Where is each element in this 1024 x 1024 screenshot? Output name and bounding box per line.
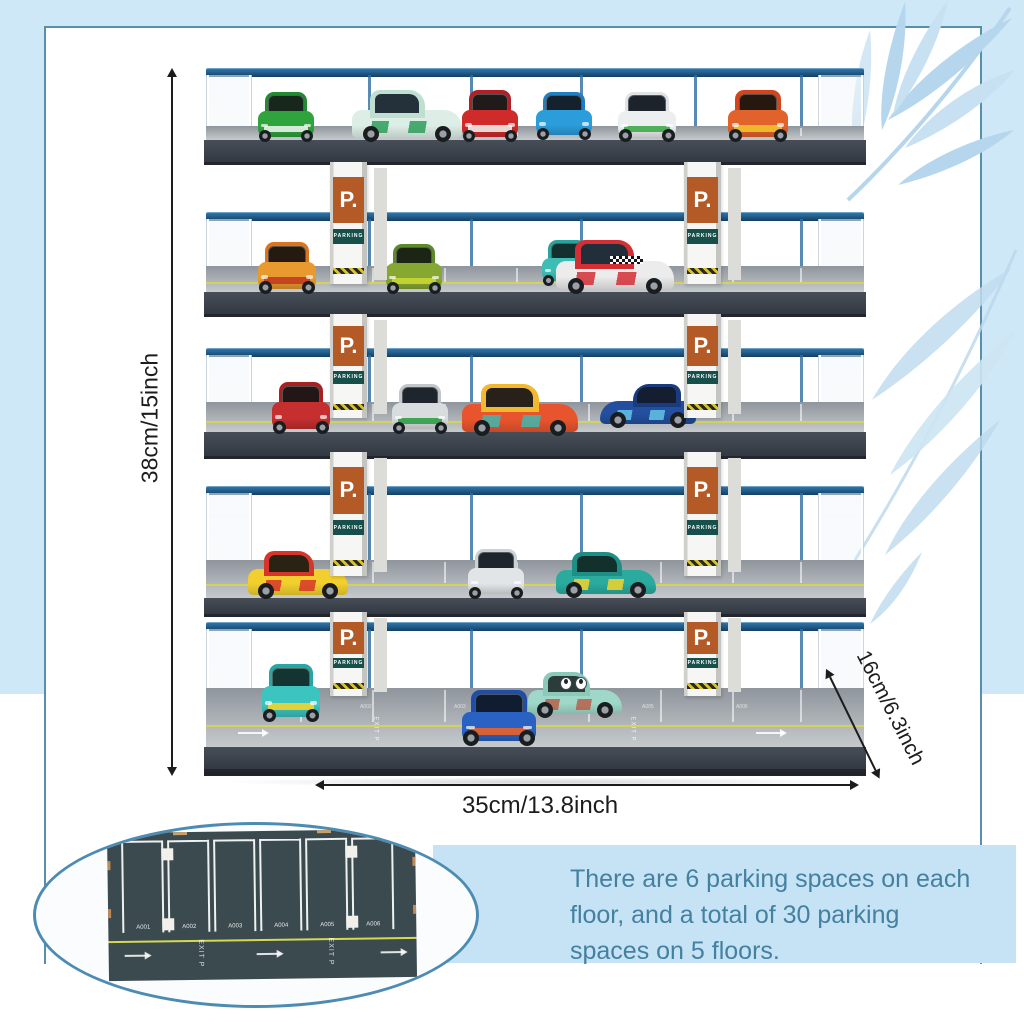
car-accent-stripe (468, 125, 513, 132)
deck-slab-edge (204, 140, 866, 165)
pillar-pad (346, 916, 358, 928)
car-wheel (301, 130, 313, 142)
car-wheel (537, 702, 553, 718)
support-pillar: P.PARKING (330, 314, 367, 418)
support-pillar-back (374, 618, 387, 692)
toy-car (462, 690, 536, 744)
car-headlight (777, 123, 784, 127)
car-window (637, 387, 675, 403)
parking-sign-p: P. (687, 326, 719, 366)
car-wheel (511, 587, 523, 599)
support-pillar-back (728, 168, 741, 280)
parking-space-line (800, 690, 802, 722)
parking-space-line (732, 690, 734, 722)
pillar-pad (345, 846, 357, 858)
railing-post (800, 219, 803, 272)
pillar-pad (162, 918, 174, 930)
toy-car (462, 384, 578, 434)
car-headlight (261, 275, 268, 279)
parking-space-outline: A005 (305, 838, 348, 931)
car-headlight (545, 269, 551, 272)
car-wheel (316, 421, 329, 434)
parking-space-line (800, 404, 802, 421)
deck-base-lip (204, 772, 866, 776)
hazard-stripe (333, 404, 365, 410)
exit-marking: EXIT P (372, 717, 378, 742)
toy-car (600, 384, 696, 426)
car-wheel (619, 129, 632, 142)
car-wheel (646, 278, 662, 294)
acrylic-side-panel-left (206, 219, 252, 271)
car-headlight (666, 124, 673, 127)
parking-space-line (800, 268, 802, 282)
car-headlight (514, 581, 521, 584)
support-pillar-back (728, 618, 741, 692)
lane-line (108, 937, 416, 943)
car-headlight (275, 415, 282, 419)
car-wheel (505, 130, 517, 142)
car-checker-flag (610, 256, 643, 264)
height-dimension-label: 38cm/15inch (137, 353, 164, 483)
parking-space-outline: A001 (121, 840, 164, 933)
car-wheel (363, 126, 379, 142)
car-wheel (273, 421, 286, 434)
description-line: floor, and a total of 30 parking (570, 897, 970, 933)
toy-car (618, 92, 676, 140)
car-wheel (463, 730, 479, 746)
parking-space-number: A001 (124, 924, 162, 931)
description-text: There are 6 parking spaces on each floor… (570, 861, 970, 969)
hazard-stripe (333, 268, 365, 274)
toy-car (272, 382, 330, 432)
car-headlight (320, 415, 327, 419)
exit-marking: EXIT P (327, 937, 334, 965)
toy-car (462, 90, 518, 140)
deck-slab-edge (204, 432, 866, 459)
railing-post (470, 629, 473, 694)
acrylic-side-panel-left (206, 493, 252, 565)
toy-car (258, 92, 314, 140)
car-wheel (302, 281, 315, 294)
parking-sign-p: P. (687, 467, 719, 514)
hazard-stripe (333, 683, 365, 689)
car-headlight (539, 122, 546, 125)
parking-space-line (444, 562, 446, 583)
parking-mat-top-view: A001A002A003A004A005A006EXIT PEXIT P (107, 829, 417, 981)
parking-sign-p: P. (333, 326, 365, 366)
parking-space-line (800, 562, 802, 583)
car-window (577, 556, 617, 573)
parking-sign-p: P. (687, 622, 719, 654)
pillar-pad (161, 848, 173, 860)
parking-sign-label: PARKING (333, 520, 365, 535)
exit-marking: EXIT P (197, 939, 204, 967)
railing-post (368, 493, 371, 566)
car-headlight (471, 581, 478, 584)
car-headlight (265, 701, 272, 705)
parking-sign-label: PARKING (687, 520, 719, 535)
parking-sign-p: P. (333, 622, 365, 654)
edge-tick (107, 861, 110, 870)
hazard-stripe (687, 404, 719, 410)
car-wheel (568, 278, 584, 294)
car-headlight (732, 123, 739, 127)
acrylic-side-panel-right (818, 75, 864, 131)
car-wheel (597, 702, 613, 718)
deck-slab-edge (204, 747, 866, 772)
car-headlight (304, 124, 311, 127)
toy-car (386, 244, 442, 292)
car-wheel (519, 730, 535, 746)
parking-space-line (444, 690, 446, 722)
deck-slab-edge (204, 598, 866, 617)
car-headlight (432, 276, 439, 279)
support-pillar-back (374, 320, 387, 414)
car-wheel (550, 420, 566, 436)
car-wheel (566, 582, 582, 598)
hazard-stripe (333, 560, 365, 566)
edge-tick (108, 909, 111, 918)
car-window (486, 388, 532, 407)
railing-post (368, 355, 371, 408)
parking-space-line (516, 268, 518, 282)
support-pillar-back (728, 320, 741, 414)
support-pillar-back (374, 168, 387, 280)
support-pillar: P.PARKING (330, 612, 367, 696)
railing-top-rail (206, 486, 864, 495)
edge-tick (173, 832, 187, 835)
car-headlight (523, 726, 532, 730)
toy-car (536, 92, 592, 138)
railing-post (470, 219, 473, 272)
parking-space-line (800, 128, 802, 136)
parking-sign-p: P. (687, 177, 719, 223)
description-panel: There are 6 parking spaces on each floor… (433, 845, 1016, 963)
parking-space-number: A006 (354, 921, 392, 928)
toy-car (556, 240, 674, 292)
lane-arrow (756, 732, 784, 734)
toy-car (392, 384, 448, 432)
parking-sign-label: PARKING (687, 371, 719, 383)
toy-car (468, 549, 524, 597)
parking-space-outline: A003 (213, 839, 256, 932)
width-dimension-label: 35cm/13.8inch (462, 792, 618, 820)
support-pillar: P.PARKING (330, 162, 367, 284)
car-headlight (621, 124, 628, 127)
railing-top-rail (206, 348, 864, 357)
floor-layout-inset: A001A002A003A004A005A006EXIT PEXIT P (33, 822, 479, 1008)
lane-arrow (125, 955, 149, 957)
car-wheel (474, 420, 490, 436)
parking-space-line (660, 562, 662, 583)
exit-marking: EXIT P (629, 717, 635, 742)
car-headlight (395, 416, 402, 419)
support-pillar-back (728, 458, 741, 572)
parking-sign-label: PARKING (333, 229, 365, 244)
support-pillar: P.PARKING (330, 452, 367, 576)
parking-sign-label: PARKING (687, 229, 719, 244)
car-wheel (429, 282, 441, 294)
railing-post (580, 355, 583, 408)
car-headlight (389, 276, 396, 279)
railing-post (800, 493, 803, 566)
parking-space-line (660, 690, 662, 722)
car-wheel (579, 128, 591, 140)
car-window (269, 555, 309, 572)
deck-slab-edge (204, 292, 866, 317)
hazard-stripe (687, 560, 719, 566)
toy-car (262, 664, 320, 720)
toy-car (352, 90, 462, 140)
acrylic-side-panel-right (818, 355, 864, 407)
product-infographic: A001A002A003A004A005A006EXIT PEXIT PP.PA… (0, 0, 1024, 1024)
car-window (375, 94, 419, 113)
parking-space-number: A005 (308, 922, 346, 929)
car-wheel (263, 709, 276, 722)
support-pillar: P.PARKING (684, 314, 721, 418)
railing-post (694, 75, 697, 132)
car-headlight (466, 726, 475, 730)
parking-space-line (444, 268, 446, 282)
parking-sign-p: P. (333, 177, 365, 223)
parking-sign-label: PARKING (687, 658, 719, 668)
acrylic-side-panel-left (206, 629, 252, 693)
toy-car (556, 552, 656, 596)
car-headlight (310, 701, 317, 705)
acrylic-side-panel-right (818, 219, 864, 271)
railing-top-rail (206, 622, 864, 631)
description-line: spaces on 5 floors. (570, 933, 970, 969)
support-pillar-back (374, 458, 387, 572)
acrylic-side-panel-left (206, 355, 252, 407)
railing-post (800, 75, 803, 132)
railing-post (368, 219, 371, 272)
railing-post (800, 355, 803, 408)
car-headlight (465, 123, 472, 127)
parking-sign-label: PARKING (333, 371, 365, 383)
car-headlight (261, 124, 268, 127)
car-wheel (774, 129, 787, 142)
car-wheel (435, 126, 451, 142)
car-headlight (438, 416, 445, 419)
support-pillar: P.PARKING (684, 452, 721, 576)
railing-post (368, 629, 371, 694)
car-wheel (543, 275, 554, 286)
toy-car (528, 672, 622, 716)
toy-car (258, 242, 316, 292)
railing-top-rail (206, 68, 864, 77)
car-wheel (610, 412, 626, 428)
lane-arrow (257, 953, 281, 955)
toy-car (728, 90, 788, 140)
edge-tick (317, 830, 331, 833)
space-number-label: A006 (736, 704, 748, 710)
hazard-stripe (687, 268, 719, 274)
acrylic-side-panel-left (206, 75, 252, 131)
space-number-label: A002 (360, 704, 372, 710)
height-dimension-arrow (171, 77, 173, 767)
parking-sign-label: PARKING (333, 658, 365, 668)
car-wheel (322, 583, 338, 599)
width-dimension-arrow (324, 784, 850, 786)
car-wheel (435, 422, 447, 434)
car-wheel (662, 129, 675, 142)
car-wheel (630, 582, 646, 598)
parking-space-number: A002 (170, 924, 208, 931)
parking-space-number: A004 (262, 922, 300, 929)
lane-arrow (381, 951, 405, 953)
parking-space-outline: A004 (259, 838, 302, 931)
railing-top-rail (206, 212, 864, 221)
parking-space-number: A003 (216, 923, 254, 930)
car-headlight (508, 123, 515, 127)
lane-arrow (238, 732, 266, 734)
description-line: There are 6 parking spaces on each (570, 861, 970, 897)
car-headlight (306, 275, 313, 279)
car-wheel (258, 583, 274, 599)
car-accent-stripe (268, 703, 314, 710)
parking-sign-p: P. (333, 467, 365, 514)
car-headlight (582, 122, 589, 125)
edge-tick (413, 905, 416, 914)
hazard-stripe (687, 683, 719, 689)
railing-post (800, 629, 803, 694)
edge-tick (412, 857, 415, 866)
car-wheel (306, 709, 319, 722)
support-pillar: P.PARKING (684, 612, 721, 696)
parking-space-line (588, 404, 590, 421)
space-number-label: A005 (642, 704, 654, 710)
acrylic-side-panel-right (818, 493, 864, 565)
car-wheel (259, 281, 272, 294)
support-pillar: P.PARKING (684, 162, 721, 284)
